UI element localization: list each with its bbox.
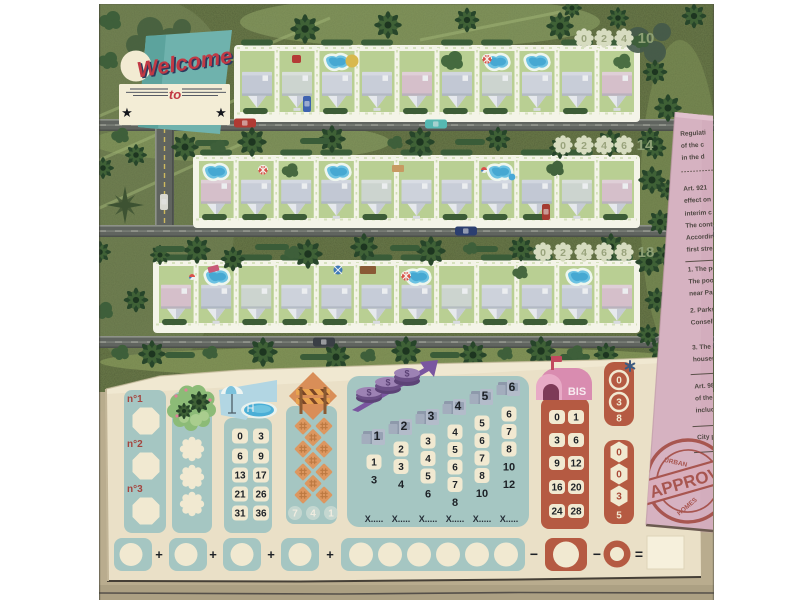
svg-text:3: 3: [258, 432, 264, 443]
svg-text:7: 7: [452, 480, 458, 491]
svg-text:$: $: [366, 388, 371, 398]
svg-text:3: 3: [616, 492, 622, 503]
svg-text:+: +: [209, 547, 217, 562]
svg-text:X.....: X.....: [446, 514, 465, 524]
svg-text:1: 1: [371, 458, 377, 469]
svg-text:10: 10: [476, 488, 488, 500]
svg-text:4: 4: [621, 33, 627, 45]
svg-text:5: 5: [479, 419, 485, 430]
svg-text:3: 3: [398, 462, 404, 473]
svg-text:0: 0: [616, 448, 622, 459]
svg-text:+: +: [155, 547, 163, 562]
svg-text:Art. 921: Art. 921: [683, 184, 708, 192]
svg-text:BIS: BIS: [568, 386, 586, 398]
svg-text:7: 7: [292, 509, 298, 520]
svg-text:3: 3: [425, 437, 431, 448]
svg-text:0: 0: [616, 376, 622, 387]
svg-text:X.....: X.....: [500, 514, 519, 524]
svg-text:4: 4: [398, 479, 405, 491]
svg-text:8: 8: [506, 445, 512, 456]
svg-text:2: 2: [398, 445, 404, 456]
svg-text:9: 9: [554, 459, 560, 470]
svg-text:3: 3: [616, 398, 622, 409]
svg-text:=: =: [635, 546, 643, 562]
svg-text:8: 8: [479, 471, 485, 482]
svg-text:6: 6: [237, 452, 243, 463]
svg-text:$: $: [385, 378, 390, 388]
svg-text:+: +: [326, 547, 334, 562]
svg-text:3: 3: [428, 409, 435, 423]
svg-text:10: 10: [503, 461, 515, 473]
svg-text:+: +: [267, 547, 275, 562]
svg-text:4: 4: [455, 399, 462, 413]
svg-text:−: −: [593, 546, 601, 562]
svg-text:5: 5: [425, 472, 431, 483]
svg-text:to: to: [169, 87, 181, 102]
svg-text:★: ★: [121, 105, 133, 120]
svg-text:0: 0: [540, 247, 546, 259]
svg-text:16: 16: [551, 483, 563, 494]
svg-text:6: 6: [425, 488, 431, 500]
svg-text:n°3: n°3: [127, 484, 143, 495]
svg-text:4: 4: [425, 454, 431, 465]
svg-text:12: 12: [503, 479, 515, 491]
svg-text:28: 28: [570, 507, 582, 518]
svg-text:X.....: X.....: [473, 514, 492, 524]
svg-text:21: 21: [234, 490, 246, 501]
svg-text:Regulati: Regulati: [680, 129, 706, 137]
svg-text:4: 4: [452, 428, 458, 439]
svg-text:4: 4: [601, 140, 607, 152]
svg-text:2: 2: [581, 140, 587, 152]
svg-text:36: 36: [255, 509, 267, 520]
svg-text:3: 3: [554, 436, 560, 447]
svg-text:6: 6: [621, 140, 627, 152]
svg-text:X.....: X.....: [392, 514, 411, 524]
svg-text:9: 9: [258, 452, 264, 463]
svg-text:0: 0: [616, 470, 622, 481]
svg-text:2: 2: [401, 419, 408, 433]
svg-text:18: 18: [638, 244, 655, 261]
svg-text:7: 7: [479, 454, 485, 465]
svg-text:24: 24: [551, 507, 563, 518]
svg-text:0: 0: [560, 140, 566, 152]
svg-text:6: 6: [509, 380, 516, 394]
svg-text:6: 6: [601, 247, 607, 259]
svg-text:3: 3: [371, 474, 377, 486]
svg-text:6: 6: [452, 463, 458, 474]
svg-text:n°2: n°2: [127, 439, 143, 450]
svg-text:1: 1: [328, 509, 334, 520]
svg-text:5: 5: [616, 511, 622, 522]
svg-text:0: 0: [237, 432, 243, 443]
svg-text:X.....: X.....: [419, 514, 438, 524]
svg-text:6: 6: [506, 410, 512, 421]
svg-text:first stre: first stre: [687, 245, 714, 253]
svg-text:6: 6: [573, 436, 579, 447]
svg-text:−: −: [530, 546, 538, 562]
svg-text:8: 8: [616, 414, 622, 425]
svg-text:2: 2: [560, 247, 566, 259]
svg-text:0: 0: [581, 33, 587, 45]
svg-text:4: 4: [310, 509, 316, 520]
svg-text:8: 8: [621, 247, 627, 259]
svg-text:1: 1: [573, 413, 579, 424]
svg-text:★: ★: [215, 105, 227, 120]
svg-text:20: 20: [570, 483, 582, 494]
svg-text:0: 0: [554, 413, 560, 424]
svg-text:5: 5: [452, 445, 458, 456]
svg-text:$: $: [404, 369, 409, 379]
svg-text:n°1: n°1: [127, 394, 143, 405]
svg-text:14: 14: [637, 137, 654, 154]
svg-text:5: 5: [482, 389, 489, 403]
svg-text:4: 4: [581, 247, 587, 259]
svg-text:2: 2: [601, 33, 607, 45]
svg-text:10: 10: [638, 30, 655, 47]
svg-text:26: 26: [255, 490, 267, 501]
svg-text:6: 6: [479, 436, 485, 447]
svg-text:13: 13: [234, 471, 246, 482]
svg-text:7: 7: [506, 427, 512, 438]
svg-text:in the d: in the d: [681, 154, 704, 162]
svg-text:8: 8: [452, 497, 458, 509]
svg-text:31: 31: [234, 509, 246, 520]
svg-text:12: 12: [570, 459, 582, 470]
svg-text:17: 17: [255, 471, 267, 482]
svg-text:1: 1: [374, 429, 381, 443]
svg-text:of the c: of the c: [681, 142, 705, 150]
svg-text:X.....: X.....: [365, 514, 384, 524]
